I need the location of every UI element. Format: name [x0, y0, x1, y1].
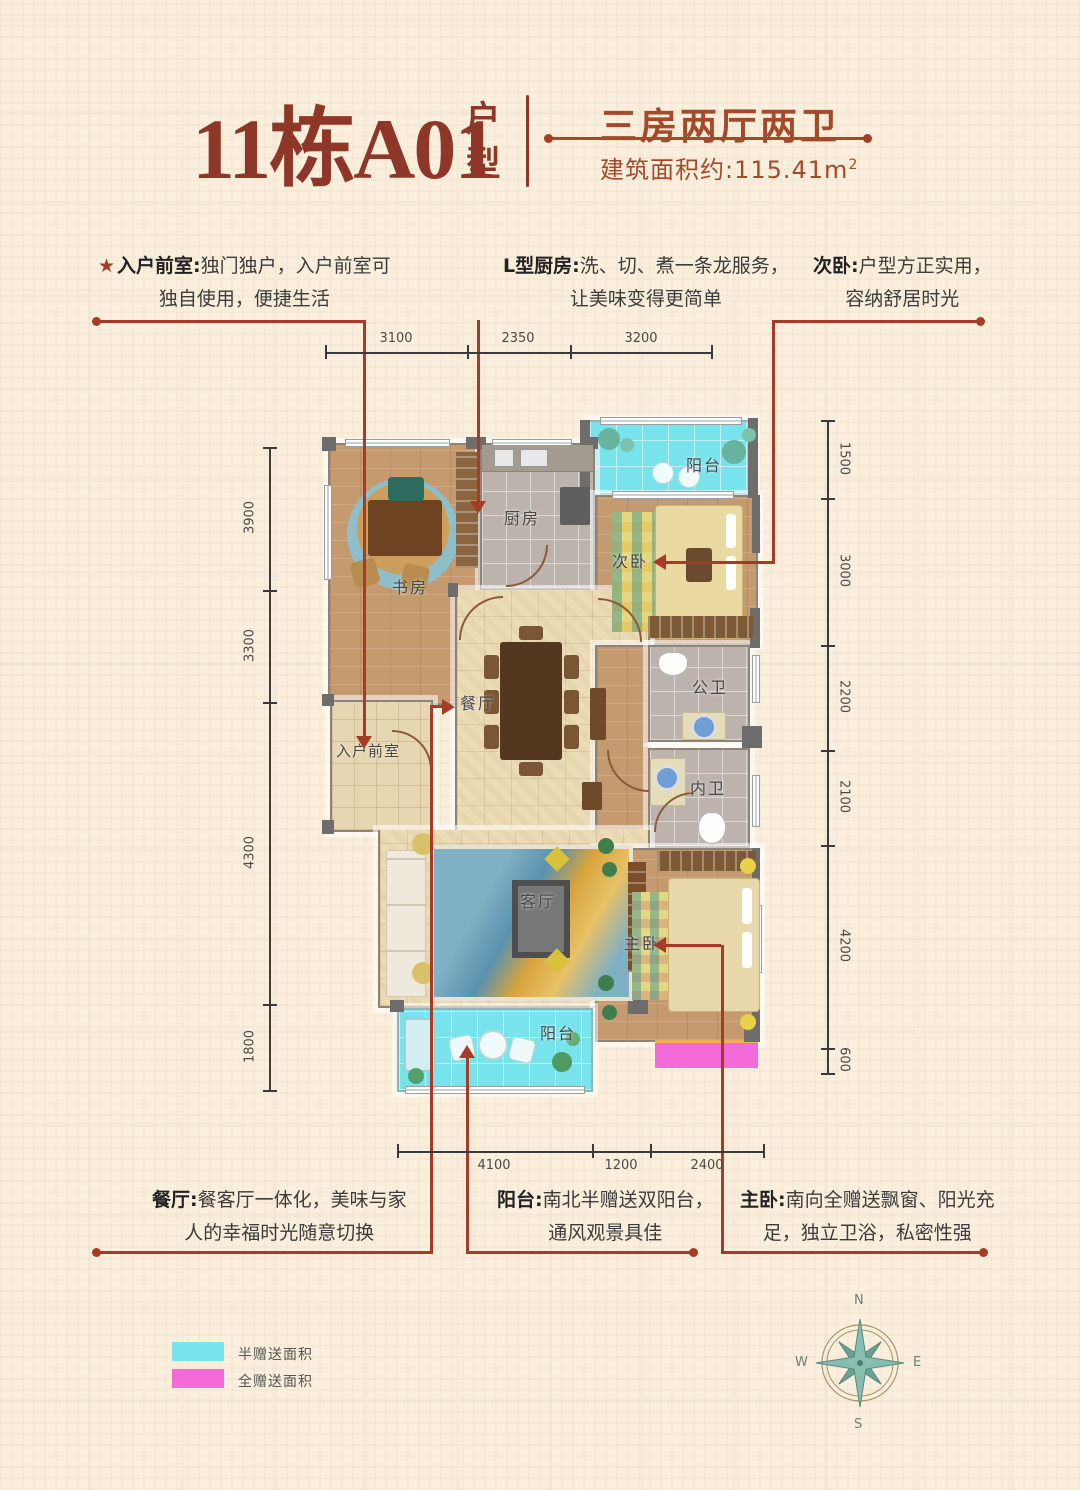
note-balcony-line1: 阳台:南北半赠送双阳台， — [497, 1184, 714, 1217]
dim-right-2: 3000 — [837, 541, 852, 601]
leader-line-dining — [96, 1251, 433, 1254]
note-dining-line2: 人的幸福时光随意切换 — [152, 1217, 407, 1250]
dining-chair — [484, 725, 499, 749]
note-balcony: 阳台:南北半赠送双阳台， 通风观景具佳 — [497, 1184, 714, 1250]
dim-right-3: 2200 — [837, 667, 852, 727]
note-foyer: ★入户前室:独门独户，入户前室可 独自使用，便捷生活 — [98, 250, 391, 316]
note-master-line1: 主卧:南向全赠送飘窗、阳光充 — [740, 1184, 995, 1217]
wall-segment — [628, 1000, 648, 1014]
wall-segment — [448, 583, 458, 597]
dim-right-5: 4200 — [837, 916, 852, 976]
plant — [742, 428, 756, 442]
dim-tick — [711, 345, 713, 359]
note-balcony-label: 阳台: — [497, 1189, 543, 1211]
dining-chair — [519, 626, 543, 640]
dim-right-6: 600 — [837, 1030, 852, 1090]
compass-west: W — [795, 1355, 808, 1370]
leader-line-master — [721, 1251, 983, 1254]
note-bedroom2: 次卧:户型方正实用， 容纳舒居时光 — [813, 250, 992, 316]
note-kitchen: L型厨房:洗、切、煮一条龙服务， 让美味变得更简单 — [503, 250, 789, 316]
plant — [620, 438, 634, 452]
sideboard — [590, 688, 606, 740]
dim-tick — [325, 345, 327, 359]
underline-dot-left — [544, 134, 553, 143]
dim-tick — [467, 345, 469, 359]
dining-chair — [564, 690, 579, 714]
dim-left-4: 1800 — [243, 1017, 258, 1077]
plant — [598, 975, 614, 991]
kitchen-sink — [520, 449, 548, 467]
star-icon: ★ — [98, 255, 115, 277]
note-master: 主卧:南向全赠送飘窗、阳光充 足，独立卫浴，私密性强 — [740, 1184, 995, 1250]
dim-bottom-1: 4100 — [464, 1158, 524, 1173]
dim-tick — [821, 420, 835, 422]
note-bedroom2-text1: 户型方正实用， — [859, 255, 992, 277]
label-living: 客厅 — [520, 888, 556, 912]
note-kitchen-line2: 让美味变得更简单 — [503, 283, 789, 316]
dining-chair — [519, 762, 543, 776]
note-foyer-label: 入户前室: — [117, 255, 201, 277]
dim-top-1: 3100 — [366, 331, 426, 346]
dim-bottom-2: 1200 — [591, 1158, 651, 1173]
leader-line-bedroom2 — [666, 561, 774, 564]
dim-bottom-3: 2400 — [677, 1158, 737, 1173]
room-corridor — [595, 645, 648, 850]
label-bath-public: 公卫 — [692, 674, 728, 698]
note-master-text1: 南向全赠送飘窗、阳光充 — [786, 1189, 995, 1211]
page-title: 11栋A01 — [192, 78, 495, 203]
plant — [598, 838, 614, 854]
header-divider — [526, 95, 529, 187]
dim-tick — [570, 345, 572, 359]
master-bay-window-gift-area — [655, 1040, 758, 1068]
plant — [722, 440, 746, 464]
compass: N E S W — [795, 1293, 925, 1433]
window — [752, 775, 760, 827]
plant — [602, 1005, 617, 1020]
note-master-label: 主卧: — [740, 1189, 786, 1211]
study-chair — [388, 477, 424, 501]
legend-label-full-gift: 全赠送面积 — [238, 1371, 313, 1391]
dimension-line-left — [269, 447, 271, 1092]
dim-left-2: 3300 — [243, 616, 258, 676]
compass-north: N — [854, 1293, 864, 1308]
label-bedroom2: 次卧 — [612, 548, 648, 572]
dim-left-1: 3900 — [243, 488, 258, 548]
note-bedroom2-line1: 次卧:户型方正实用， — [813, 250, 992, 283]
balcony-seat — [652, 462, 674, 484]
toilet — [698, 812, 726, 844]
leader-arrow-master — [653, 937, 666, 953]
master-pillow — [742, 888, 752, 924]
window — [600, 417, 742, 425]
label-kitchen: 厨房 — [504, 505, 540, 529]
leader-line-balcony — [466, 1058, 469, 1254]
legend-swatch-full-gift — [172, 1369, 224, 1388]
leader-line-master — [721, 945, 724, 1254]
kitchen-sink — [494, 449, 514, 467]
leader-line-foyer — [96, 320, 366, 323]
dining-chair — [564, 655, 579, 679]
header-underline — [548, 137, 868, 140]
leader-dot — [976, 317, 985, 326]
dim-tick — [263, 702, 277, 704]
dim-tick — [821, 845, 835, 847]
note-bedroom2-line2: 容纳舒居时光 — [813, 283, 992, 316]
dim-tick — [821, 498, 835, 500]
dim-tick — [263, 1090, 277, 1092]
dim-top-2: 2350 — [488, 331, 548, 346]
dim-right-1: 1500 — [837, 429, 852, 489]
dim-tick — [821, 1048, 835, 1050]
plant — [552, 1052, 572, 1072]
page-title-suffix: 户型 — [463, 98, 503, 188]
bath-sink — [655, 766, 679, 790]
wall-segment — [390, 1000, 404, 1012]
dim-tick — [263, 447, 277, 449]
note-kitchen-label: L型厨房: — [503, 255, 580, 277]
hall-cabinet — [582, 782, 602, 810]
leader-line-bedroom2 — [772, 320, 775, 564]
leader-arrow-balcony — [459, 1045, 475, 1058]
note-dining-text1: 餐客厅一体化，美味与家 — [198, 1189, 407, 1211]
master-pillow — [742, 932, 752, 968]
plant — [602, 862, 617, 877]
kitchen-stove — [560, 487, 590, 525]
legend-label-half-gift: 半赠送面积 — [238, 1344, 313, 1364]
dim-tick — [263, 1004, 277, 1006]
underline-dot-right — [863, 134, 872, 143]
window — [612, 491, 734, 499]
bedroom2-pillow — [726, 514, 736, 548]
leader-arrow-kitchen — [470, 501, 486, 514]
window — [752, 655, 760, 703]
bedroom2-tray — [686, 548, 712, 582]
plant — [598, 428, 620, 450]
note-bedroom2-label: 次卧: — [813, 255, 859, 277]
unit-type-title: 三房两厅两卫 — [600, 96, 840, 150]
dim-tick — [263, 590, 277, 592]
note-kitchen-text1: 洗、切、煮一条龙服务， — [580, 255, 789, 277]
dim-tick — [821, 750, 835, 752]
bedside-lamp — [740, 858, 756, 874]
note-master-line2: 足，独立卫浴，私密性强 — [740, 1217, 995, 1250]
dimension-line-bottom — [397, 1151, 765, 1153]
label-study: 书房 — [392, 574, 428, 598]
leader-arrow-foyer — [356, 736, 372, 749]
dim-tick — [821, 1073, 835, 1075]
note-dining-line1: 餐厅:餐客厅一体化，美味与家 — [152, 1184, 407, 1217]
wall-segment — [322, 820, 334, 834]
dining-table — [500, 642, 562, 760]
bath-sink — [692, 715, 716, 739]
dim-right-4: 2100 — [837, 767, 852, 827]
building-area-text: 建筑面积约:115.41m — [600, 156, 848, 184]
leader-line-kitchen — [477, 320, 480, 503]
dim-tick — [592, 1144, 594, 1158]
label-balcony-top: 阳台 — [686, 452, 722, 476]
bedroom2-wardrobe — [648, 616, 753, 638]
note-dining-label: 餐厅: — [152, 1189, 198, 1211]
compass-rose-icon — [795, 1293, 925, 1433]
leader-line-balcony — [468, 1251, 693, 1254]
leader-line-bedroom2 — [772, 320, 980, 323]
study-desk — [368, 500, 442, 556]
dim-tick — [763, 1144, 765, 1158]
dim-top-3: 3200 — [611, 331, 671, 346]
leader-line-foyer — [363, 320, 366, 738]
plant — [408, 1068, 424, 1084]
note-foyer-line2: 独自使用，便捷生活 — [98, 283, 391, 316]
note-foyer-line1: ★入户前室:独门独户，入户前室可 — [98, 250, 391, 283]
wall-segment — [742, 726, 762, 748]
balcony-table — [478, 1030, 508, 1060]
compass-south: S — [854, 1417, 862, 1432]
leader-line-dining — [430, 705, 433, 1253]
note-balcony-line2: 通风观景具佳 — [497, 1217, 714, 1250]
note-dining: 餐厅:餐客厅一体化，美味与家 人的幸福时光随意切换 — [152, 1184, 407, 1250]
note-kitchen-line1: L型厨房:洗、切、煮一条龙服务， — [503, 250, 789, 283]
bedside-lamp — [740, 1014, 756, 1030]
area-superscript: 2 — [848, 157, 858, 173]
dim-left-3: 4300 — [243, 823, 258, 883]
window — [324, 485, 332, 580]
leader-dot — [979, 1248, 988, 1257]
dim-tick — [650, 1144, 652, 1158]
wall-segment — [752, 495, 760, 553]
label-bath-private: 内卫 — [690, 775, 726, 799]
compass-east: E — [913, 1355, 921, 1370]
building-area: 建筑面积约:115.41m2 — [600, 150, 858, 185]
wall-segment — [744, 1028, 760, 1042]
leader-arrow-bedroom2 — [653, 554, 666, 570]
window — [345, 439, 450, 447]
dining-chair — [564, 725, 579, 749]
dimension-line-top — [325, 352, 712, 354]
leader-line-master — [666, 944, 721, 947]
note-balcony-text1: 南北半赠送双阳台， — [543, 1189, 714, 1211]
leader-dot — [689, 1248, 698, 1257]
legend-swatch-half-gift — [172, 1342, 224, 1361]
note-foyer-text1: 独门独户，入户前室可 — [201, 255, 391, 277]
label-dining: 餐厅 — [460, 690, 496, 714]
dimension-line-right — [827, 420, 829, 1075]
leader-line-dining — [430, 705, 442, 708]
label-balcony-bottom: 阳台 — [540, 1020, 576, 1044]
toilet — [658, 652, 688, 676]
dim-tick — [397, 1144, 399, 1158]
dim-tick — [821, 645, 835, 647]
dining-chair — [484, 655, 499, 679]
wall-segment — [322, 694, 334, 706]
leader-arrow-dining — [442, 699, 455, 715]
wall-segment — [322, 437, 336, 451]
floorplan-poster: 11栋A01 户型 三房两厅两卫 建筑面积约:115.41m2 ★入户前室:独门… — [0, 0, 1080, 1490]
